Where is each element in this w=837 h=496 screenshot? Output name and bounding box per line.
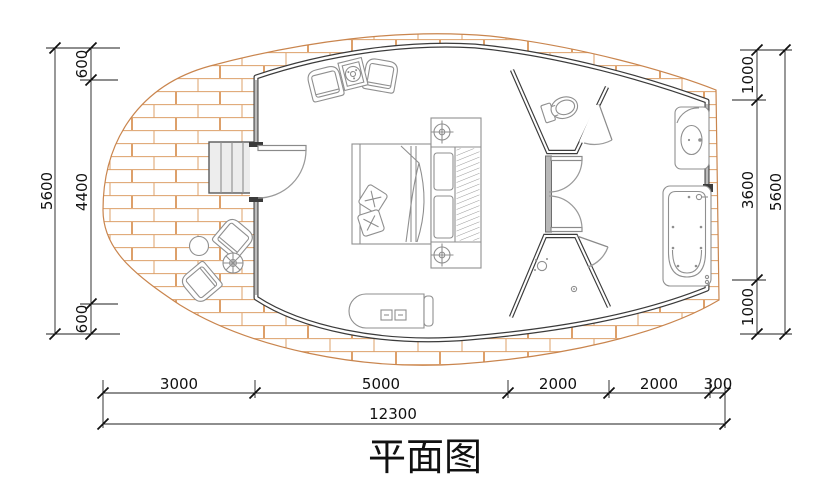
dim-bottom-s1: 3000 xyxy=(160,375,198,393)
dim-bottom-s2: 5000 xyxy=(362,375,400,393)
drawing-title: 平面图 xyxy=(368,435,482,479)
entry-opening xyxy=(250,147,262,197)
bed xyxy=(352,144,431,244)
armchair xyxy=(362,57,399,93)
dim-left-bottom: 600 xyxy=(73,305,91,334)
bathtub xyxy=(663,186,711,286)
floor-plan-drawing: 600 4400 600 5600 1000 3600 1000 5600 xyxy=(0,0,837,496)
floor-plan-page: 600 4400 600 5600 1000 3600 1000 5600 xyxy=(0,0,837,496)
dim-bottom-s5: 300 xyxy=(704,375,733,393)
basin-faucet-icon xyxy=(698,138,702,142)
dim-right-top: 1000 xyxy=(739,56,757,94)
dim-right-bottom: 1000 xyxy=(739,288,757,326)
dim-left-mid: 4400 xyxy=(73,173,91,211)
tv-console xyxy=(349,294,433,328)
hanging-rail xyxy=(457,149,480,241)
dim-left-top: 600 xyxy=(73,50,91,79)
dim-right-mid: 3600 xyxy=(739,171,757,209)
corridor-wall xyxy=(546,156,552,232)
dim-right-overall: 5600 xyxy=(767,173,785,211)
dimensions-bottom: 3000 5000 2000 2000 300 12300 xyxy=(98,375,733,430)
outdoor-round-table xyxy=(190,237,209,256)
dimensions-right: 1000 3600 1000 5600 xyxy=(732,45,792,340)
entry-steps xyxy=(209,142,254,193)
dim-left-overall: 5600 xyxy=(38,172,56,210)
dim-bottom-s4: 2000 xyxy=(640,375,678,393)
washbasin xyxy=(675,107,709,169)
dim-bottom-s3: 2000 xyxy=(539,375,577,393)
dim-bottom-overall: 12300 xyxy=(369,405,417,423)
wardrobe xyxy=(431,118,482,268)
outdoor-parasol-table xyxy=(223,253,243,273)
